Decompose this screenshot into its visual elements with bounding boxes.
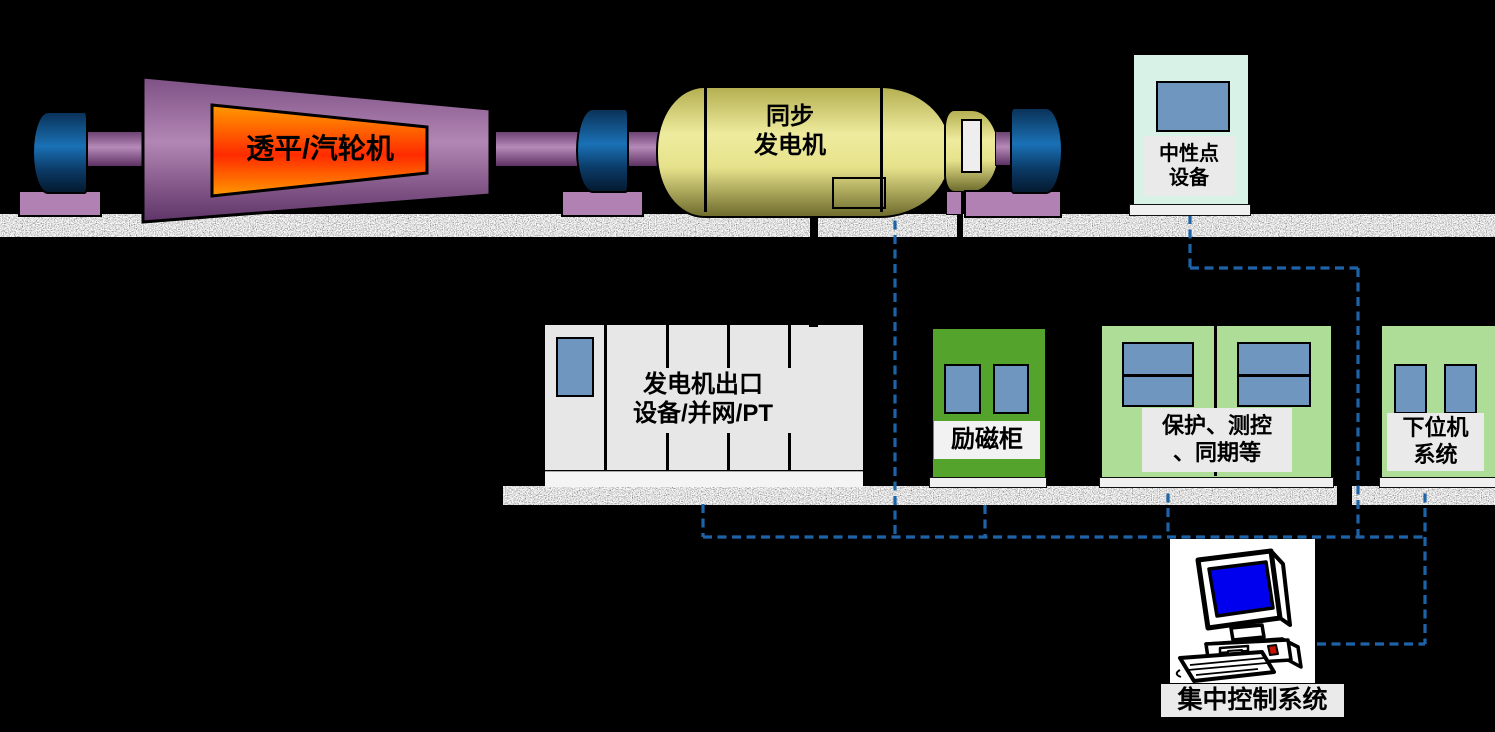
turbine-label: 透平/汽轮机 (170, 131, 470, 167)
outlet-divider-bottom-2 (727, 433, 730, 470)
lower-computer-screen-1 (1394, 364, 1427, 414)
outlet-divider-bottom-1 (666, 433, 669, 470)
excitation-screen-1 (944, 364, 981, 414)
excitation-cabinet-base (929, 477, 1047, 488)
generator-terminal-box (832, 177, 886, 209)
outlet-cabinet-label: 发电机出口 设备/并网/PT (563, 366, 843, 432)
turbine-shaft-left (80, 131, 148, 167)
power-switch (1268, 645, 1278, 655)
outlet-divider-top-3 (788, 325, 791, 368)
protection-screen-2 (1122, 375, 1194, 407)
generator-bearing-left (576, 108, 629, 193)
central-control-label: 集中控制系统 (1161, 684, 1344, 717)
protection-cabinet-label: 保护、测控 、同期等 (1142, 408, 1292, 472)
cable (1177, 670, 1181, 677)
generator-bearing-right (1010, 107, 1063, 194)
excitation-cabinet-label: 励磁柜 (934, 421, 1040, 459)
turbine-bearing-left (32, 111, 88, 194)
neutral-point-base (1129, 204, 1251, 216)
protection-screen-3 (1237, 342, 1311, 376)
lower-computer-label: 下位机 系统 (1387, 413, 1484, 471)
outlet-divider-bottom-3 (788, 433, 791, 470)
generator-label: 同步 发电机 (700, 96, 880, 166)
exciter-brush-slot (961, 119, 982, 173)
outlet-divider-top-1 (666, 325, 669, 368)
pedestal-spacer-right (946, 191, 962, 215)
generator-bearing-pedestal-right (964, 190, 1062, 218)
outlet-top-notch (809, 321, 818, 327)
monitor-screen (1209, 562, 1273, 616)
protection-screen-4 (1237, 375, 1311, 407)
excitation-screen-2 (993, 364, 1029, 414)
lower-computer-base (1379, 477, 1495, 488)
turbine-bearing-pedestal (18, 190, 102, 217)
protection-screen-1 (1122, 342, 1194, 376)
desktop-computer-icon (1170, 539, 1315, 683)
monitor-stand (1231, 625, 1264, 640)
neutral-point-label: 中性点 设备 (1143, 136, 1235, 196)
protection-cabinet-base (1099, 477, 1334, 488)
outlet-cabinet-base (545, 471, 863, 487)
generator-bearing-pedestal-left (561, 190, 644, 217)
neutral-point-screen (1156, 81, 1230, 132)
lower-computer-screen-2 (1444, 364, 1477, 414)
diagram-canvas: 透平/汽轮机 同步 发电机 中性点 设备 发电机出口 设备/并网/PT 励磁柜 … (0, 0, 1495, 732)
outlet-divider-top-2 (727, 325, 730, 368)
